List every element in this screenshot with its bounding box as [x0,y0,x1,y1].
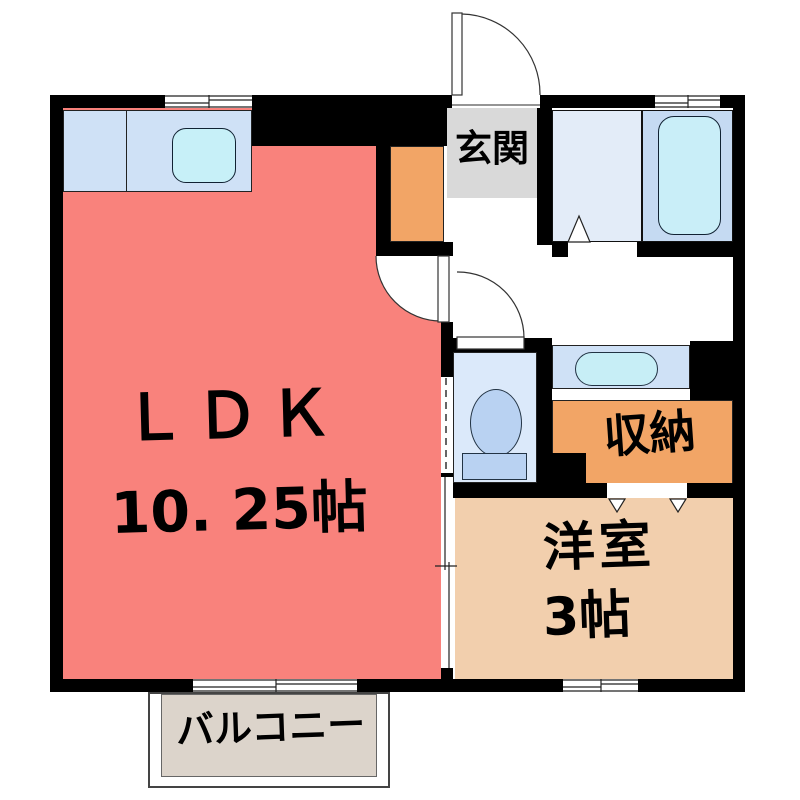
closet-opening [607,483,687,498]
kitchen-counter-divider [126,110,127,192]
wall-right [733,95,745,692]
ldk-label: ＬＤＫ [122,381,343,450]
wall-entrance-right [537,108,552,245]
wall-basin-right-block [690,341,733,400]
toilet-tank [462,453,527,480]
ldk-door-opening [441,256,453,322]
washroom-floor [552,110,642,242]
wall-western-room-top [453,483,733,498]
bathroom-door-opening [568,242,637,257]
wall-left [50,95,63,692]
entrance-opening [452,95,540,108]
wall-storage-notch [552,453,586,485]
bathtub [658,116,721,235]
ldk-dashed-boundary [441,377,453,473]
sliding-door-band [441,477,453,668]
balcony-label: バルコニー [165,705,376,750]
wall-toilet-top [453,338,537,352]
floor-plan: ＬＤＫ 10. 25帖 玄関 収納 洋室 3帖 バルコニー [0,0,800,800]
kitchen-storage-box [390,146,444,242]
toilet-door-swing [457,272,524,338]
storage-label: 収納 [602,408,697,460]
toilet-bowl [470,389,522,457]
washbasin-bowl [575,352,658,386]
entrance-label: 玄関 [447,130,537,167]
entrance-door-arc [462,14,540,95]
western-room-label: 洋室 [542,519,656,575]
toilet-door-arc [457,272,524,338]
kitchen-sink [172,128,236,183]
wall-top-middle-band [252,95,447,146]
western-room-size-label: 3帖 [542,589,632,644]
entrance-door-leaf [452,13,462,95]
wall-bottom [50,679,745,692]
wall-left-of-kitchen-storage [376,146,390,242]
ldk-size-label: 10. 25帖 [110,479,369,543]
wall-toilet-right [537,338,552,498]
